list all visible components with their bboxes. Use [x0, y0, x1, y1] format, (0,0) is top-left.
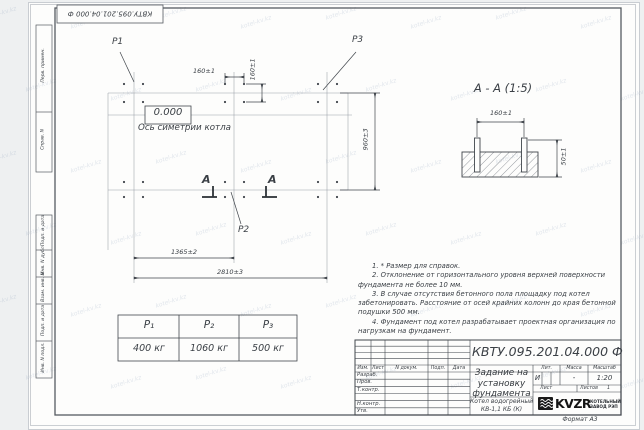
loads-table-value-p1: 400 кг [119, 344, 179, 354]
loads-table-header-p1: P₁ [119, 320, 179, 331]
load-point-p3-label: P3 [352, 36, 363, 45]
load-point-p1-label: P1 [112, 38, 123, 47]
tb-scale-value: 1:20 [588, 375, 621, 382]
symmetry-axis-label: Ось симетрии котла [138, 124, 231, 133]
load-point-p2-label: P2 [238, 226, 249, 235]
sheet-frame [31, 5, 636, 426]
note-4: 4. Фундамент под котел разрабатывает про… [358, 318, 620, 337]
kvzr-company-name: КОТЕЛЬНЫЙ ЗАВОД РЭП [590, 399, 624, 409]
tb-lit-label: Лит. [533, 366, 560, 371]
technical-notes: 1. * Размер для справок. 2. Отклонение о… [358, 262, 620, 336]
elevation-mark: 0.000 [146, 108, 190, 119]
title-block-designation: КВТУ.095.201.04.000 Ф [472, 345, 619, 358]
tb-header-ndokum: N докум. [385, 366, 428, 371]
format-label: Формат А3 [550, 417, 610, 424]
loads-table-header-p2: P₂ [179, 320, 239, 331]
tb-sheet-label: Лист [540, 386, 552, 391]
sidebar-label-vzam-inv: Взам. инв. N [42, 274, 47, 301]
tb-sheets-value: 1 [607, 386, 610, 391]
dim-bolt-spacing-y: 160±1 [250, 56, 257, 82]
sidebar-label-inv-dubl: Инв. N дубл. [42, 247, 47, 274]
kvzr-logo-icon [538, 397, 553, 410]
section-view-title: А - А (1:5) [443, 82, 563, 94]
foundation-plan-outline [108, 72, 352, 283]
title-block-doc-title: Задание на установку фундамента [469, 368, 534, 400]
tb-header-podp: Подп. [428, 366, 448, 371]
kvzr-logo-text: KVZR [555, 396, 591, 411]
note-2: 2. Отклонение от горизонтального уровня … [358, 271, 620, 290]
section-dim-depth: 50±1 [561, 143, 568, 169]
sidebar-label-inv-podl: Инв. N подл. [42, 338, 47, 375]
tb-lit-value: И [533, 375, 542, 382]
anchor-bolt-points [123, 83, 338, 198]
tb-sheets-label: Листов [580, 386, 598, 391]
scanned-drawing-sheet: { "watermark": { "text": "kotel-kv.kz" }… [0, 0, 644, 430]
section-detail [462, 118, 562, 177]
tb-row-tkontr: Т.контр. [357, 388, 379, 393]
sidebar-label-podp-data-2: Подп. и дата [42, 301, 47, 338]
tb-scale-label: Масштаб [588, 366, 621, 371]
tb-header-izm: Изм. [355, 366, 371, 371]
top-stamp-designation: КВТУ.095.201.04.000 Ф [59, 9, 161, 16]
loads-table-value-p3: 500 кг [239, 344, 297, 354]
dim-height-total: 960±3 [363, 124, 370, 154]
loads-table-value-p2: 1060 кг [179, 344, 239, 354]
dim-width-total: 2810±3 [200, 269, 260, 276]
tb-header-list: Лист [371, 366, 385, 371]
tb-mass-label: Масса [560, 366, 588, 371]
sidebar-label-podp-data-1: Подп. и дата [42, 212, 47, 247]
note-3: 3. В случае отсутствия бетонного пола пл… [358, 290, 620, 318]
tb-row-nkontr: Н.контр. [357, 402, 380, 407]
dim-bolt-spacing-x: 160±1 [193, 68, 215, 75]
loads-table-header-p3: P₃ [239, 320, 297, 331]
title-block-product: Котел водогрейный КВ-1,1 КБ (К) [468, 398, 535, 413]
section-letter-right: А [268, 174, 277, 186]
tb-mass-value: - [560, 375, 588, 382]
section-letter-left: А [202, 174, 211, 186]
tb-header-data: Дата [448, 366, 470, 371]
sidebar-label-sprav-n: Справ. N [42, 109, 47, 169]
sidebar-label-perv-primen: Перв. примен. [42, 22, 47, 109]
section-cut-marks [202, 186, 277, 197]
tb-row-prov: Пров. [357, 380, 372, 385]
tb-row-utv: Утв. [357, 409, 368, 414]
tb-row-razrab: Разраб. [357, 373, 377, 378]
dim-width-inner: 1365±2 [154, 249, 214, 256]
kvzr-company-line2: ЗАВОД РЭП [590, 404, 624, 409]
section-dim-spacing: 160±1 [471, 110, 531, 117]
load-point-leaders [120, 52, 356, 224]
note-1: 1. * Размер для справок. [358, 262, 620, 271]
